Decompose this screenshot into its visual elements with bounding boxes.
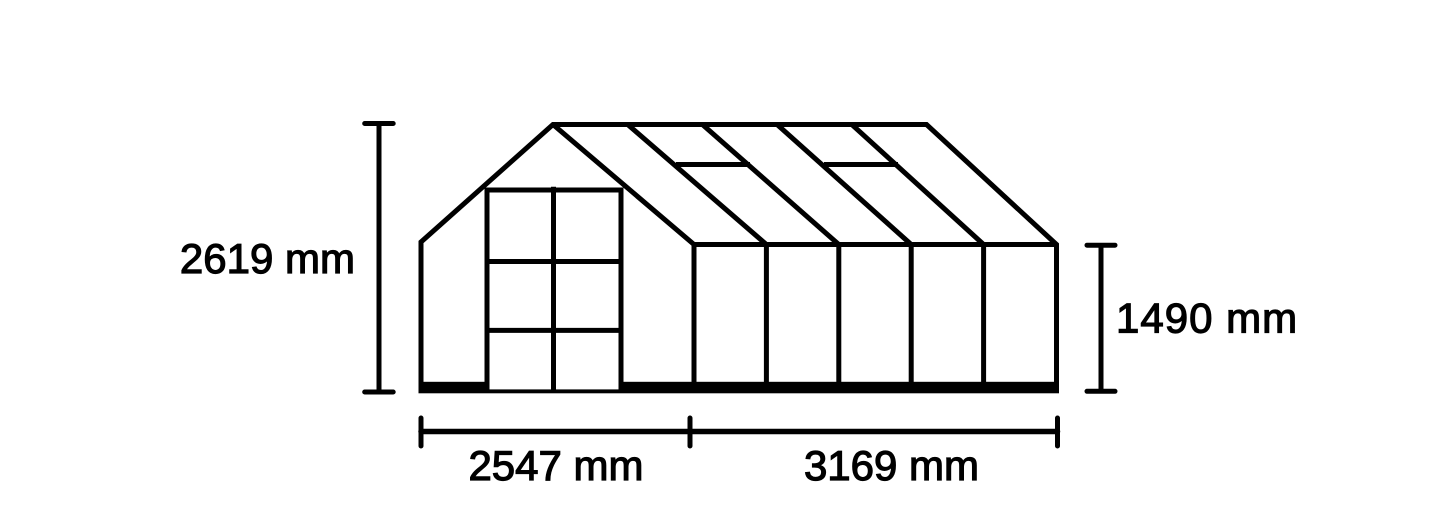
svg-text:2547 mm: 2547 mm: [468, 442, 643, 489]
svg-text:3169 mm: 3169 mm: [804, 442, 979, 489]
svg-text:1490 mm: 1490 mm: [1116, 295, 1298, 342]
svg-text:2619 mm: 2619 mm: [180, 235, 355, 282]
